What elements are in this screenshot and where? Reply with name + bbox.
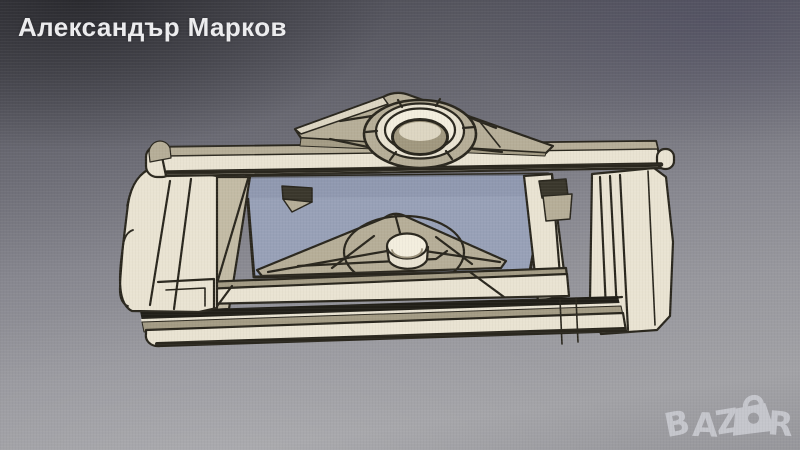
seller-name: Александър Марков — [18, 12, 287, 43]
bracket-3d-model — [120, 93, 674, 346]
watermark-text-suffix: R — [764, 402, 793, 446]
top-boss-with-hole — [364, 99, 476, 168]
left-wall — [120, 166, 217, 312]
cad-viewport-model[interactable] — [0, 0, 800, 450]
bazar-watermark: BAZ R — [663, 389, 794, 448]
screen-photo: Александър Марков — [0, 0, 800, 450]
watermark-text-prefix: BAZ — [663, 399, 743, 447]
inner-boss-cylinder — [387, 234, 428, 269]
